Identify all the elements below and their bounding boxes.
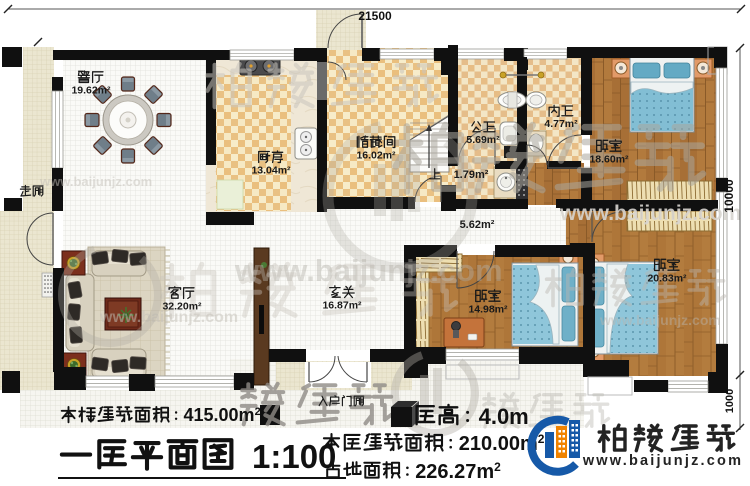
svg-text:415.00m2: 415.00m2 [184, 405, 261, 425]
svg-text:14.98m²: 14.98m² [468, 304, 508, 316]
svg-text:5.69m²: 5.69m² [466, 134, 500, 146]
svg-text:32.20m²: 32.20m² [162, 301, 202, 313]
svg-text:21500: 21500 [358, 9, 392, 23]
svg-text:www.baijunjz.com: www.baijunjz.com [599, 312, 721, 328]
svg-text:4.0m: 4.0m [479, 404, 529, 429]
svg-text:13.04m²: 13.04m² [251, 165, 291, 177]
svg-text:226.27m2: 226.27m2 [415, 460, 501, 483]
svg-text:18.60m²: 18.60m² [589, 154, 629, 166]
svg-text:1000: 1000 [724, 389, 736, 413]
svg-text:5.62m²: 5.62m² [460, 219, 495, 231]
svg-text:1:100: 1:100 [252, 438, 336, 475]
svg-text:19.62m²: 19.62m² [71, 85, 111, 97]
svg-text:16.87m²: 16.87m² [322, 300, 362, 312]
svg-text:www.baijunjz.com: www.baijunjz.com [39, 174, 152, 189]
svg-text:20.83m²: 20.83m² [647, 273, 687, 285]
svg-text:16.02m²: 16.02m² [356, 150, 396, 162]
svg-text:10000: 10000 [722, 179, 736, 213]
svg-text:4.77m²: 4.77m² [544, 118, 578, 130]
svg-text:www.baijunjz.com: www.baijunjz.com [582, 453, 743, 469]
svg-text:www.baijunjz.com: www.baijunjz.com [559, 202, 741, 225]
svg-text:1.79m²: 1.79m² [454, 169, 489, 181]
